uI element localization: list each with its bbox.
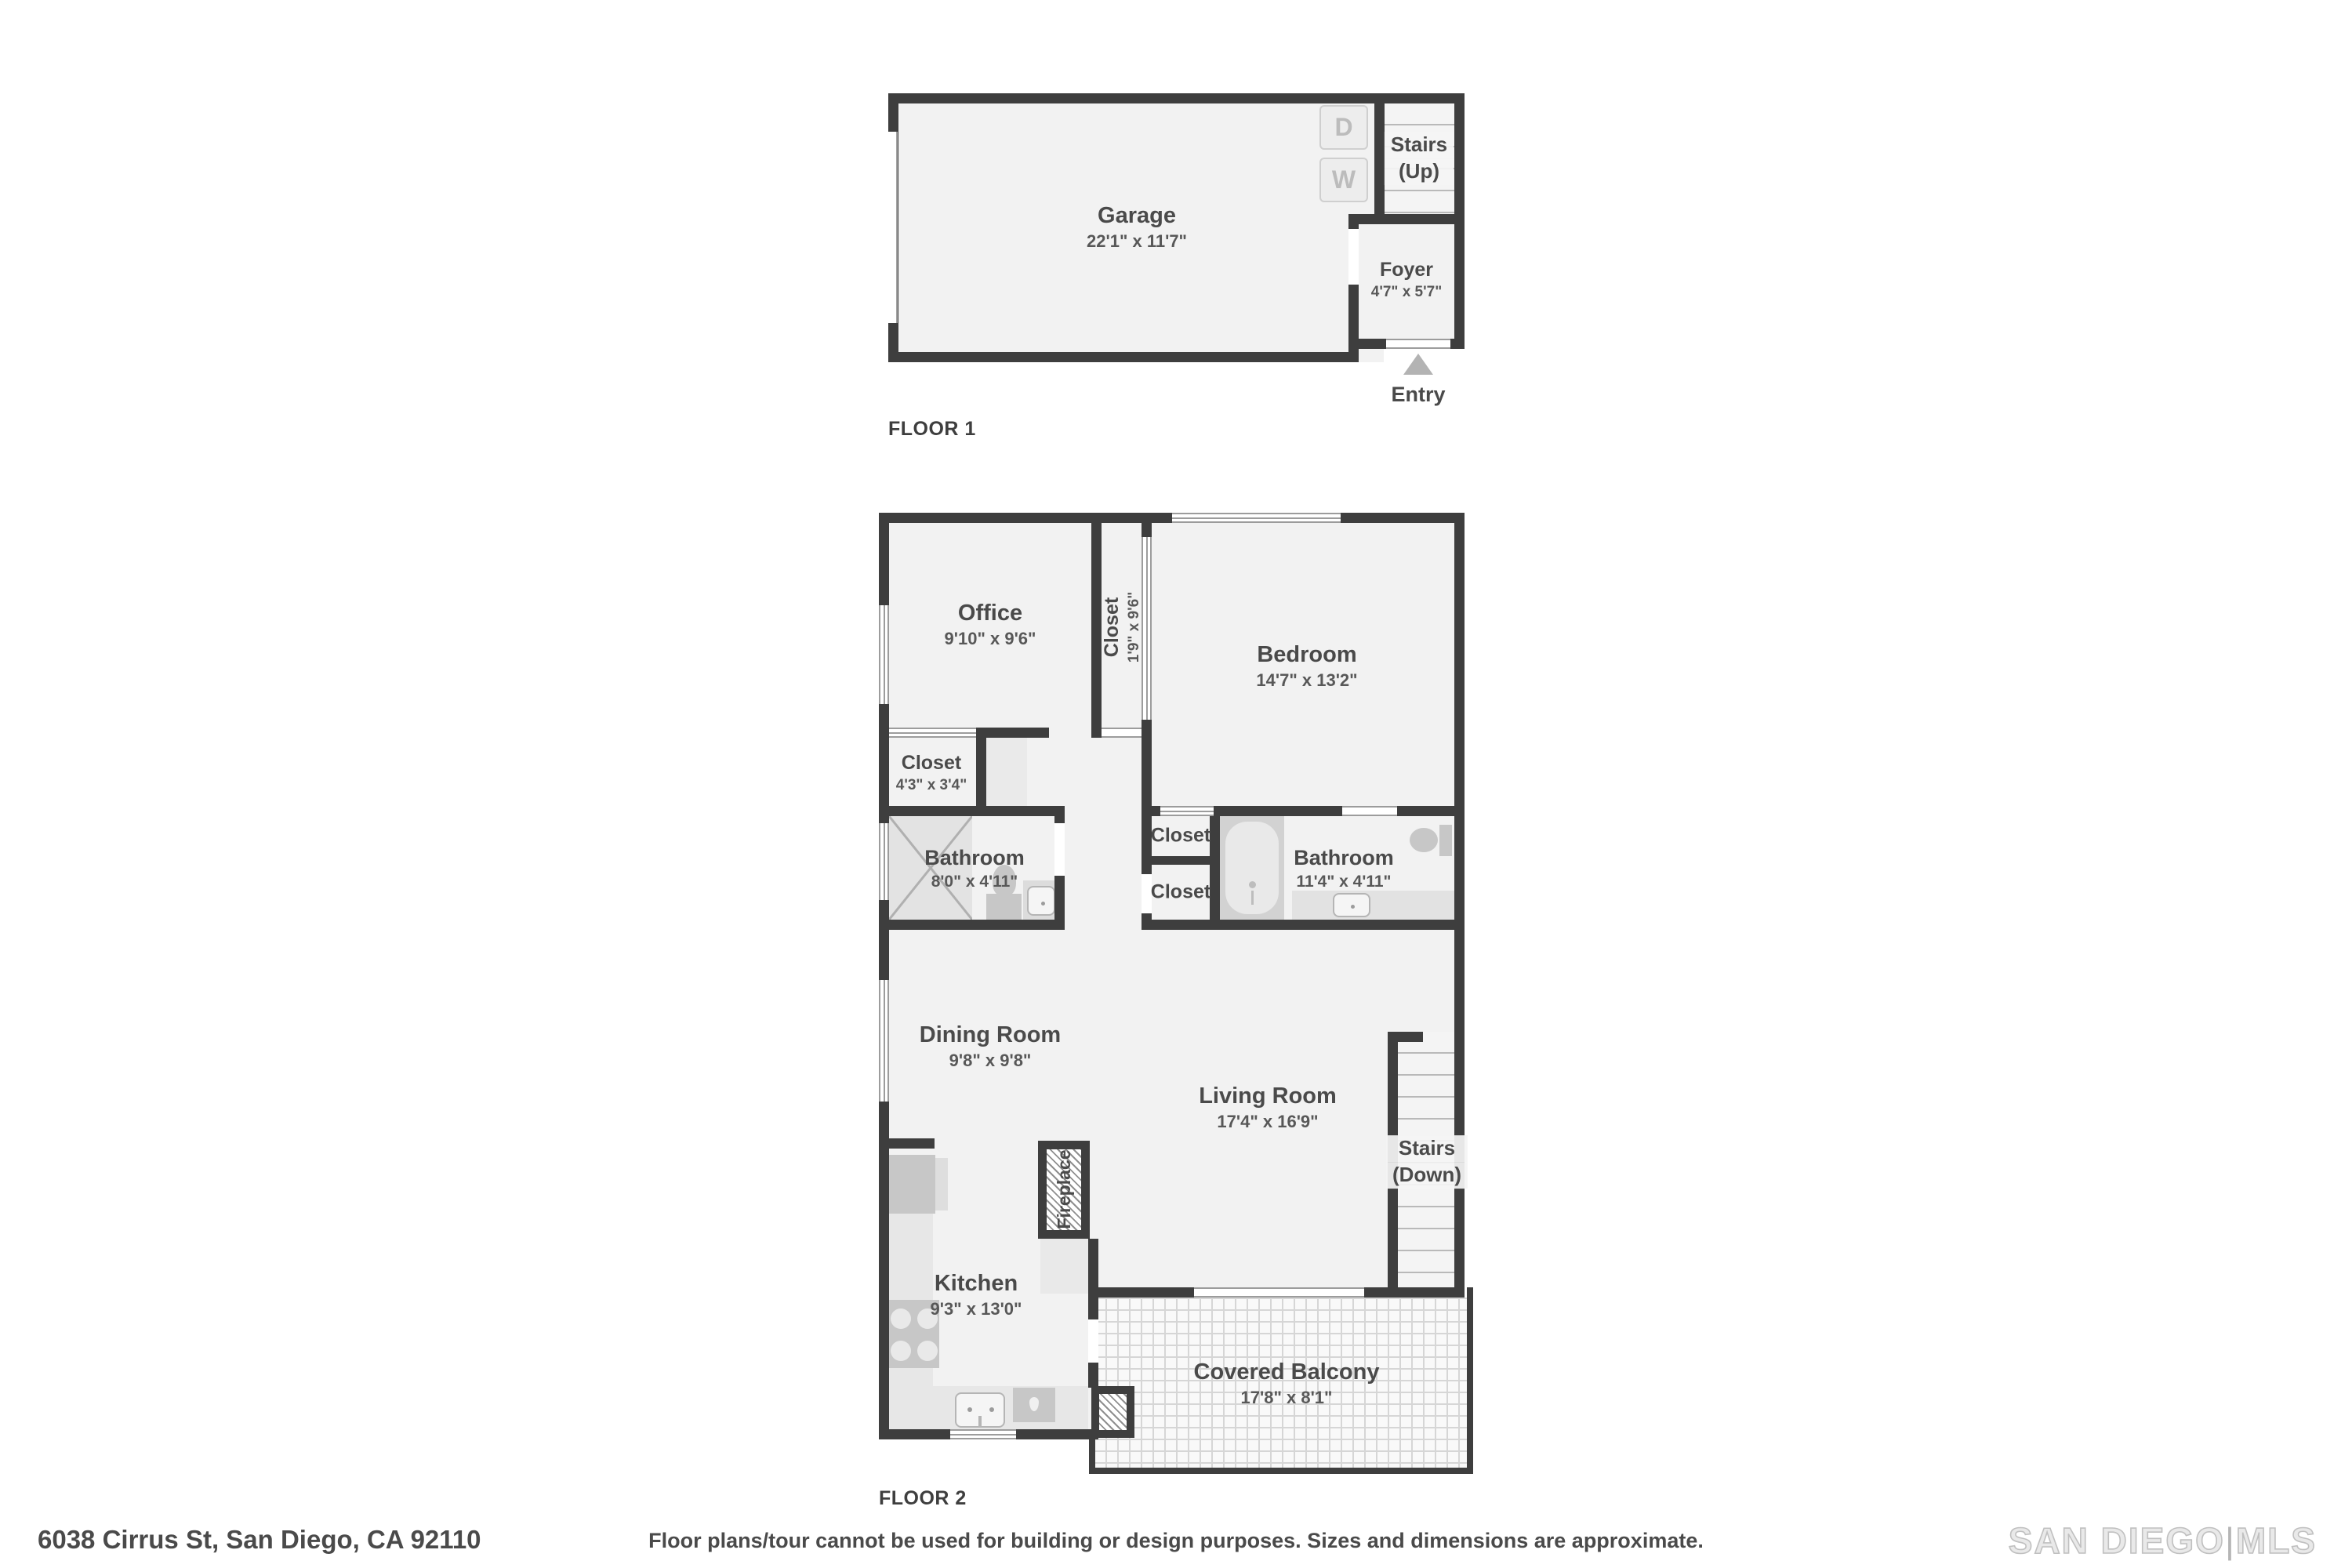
bathroom2-sink-icon bbox=[1333, 893, 1370, 917]
stairs-down-label: Stairs (Down) bbox=[1386, 1135, 1468, 1189]
burner-icon bbox=[917, 1341, 938, 1361]
kitchen-balcony-door-opening bbox=[1088, 1319, 1098, 1363]
wall bbox=[879, 920, 1065, 930]
wall bbox=[879, 806, 1065, 816]
wall bbox=[1142, 920, 1465, 930]
dishwasher-icon bbox=[1013, 1388, 1055, 1422]
balcony-wall-thin bbox=[1467, 1287, 1473, 1474]
floor2-tag: FLOOR 2 bbox=[879, 1487, 967, 1510]
wall bbox=[1091, 513, 1102, 738]
burner-icon bbox=[891, 1341, 911, 1361]
dining-window bbox=[879, 980, 889, 1102]
burner-icon bbox=[891, 1308, 911, 1329]
wall bbox=[976, 738, 986, 806]
stairs-down-nub bbox=[1388, 1032, 1423, 1042]
floor2-mid-area bbox=[879, 930, 1465, 1298]
wall bbox=[1142, 720, 1152, 816]
wall bbox=[1364, 1287, 1465, 1298]
wall bbox=[1088, 1239, 1098, 1319]
room-living-label: Living Room 17'4" x 16'9" bbox=[1199, 1083, 1337, 1132]
bathroom-sink-icon bbox=[1027, 886, 1055, 916]
wall bbox=[1142, 513, 1152, 537]
fireplace-label: Fireplace bbox=[1054, 1150, 1074, 1229]
wall bbox=[1098, 1287, 1194, 1298]
wall bbox=[1142, 856, 1220, 865]
logo-secondary: MLS bbox=[2236, 1520, 2317, 1561]
logo-divider: | bbox=[2225, 1520, 2236, 1561]
closet-upper-label: Closet bbox=[1151, 825, 1210, 848]
closet-tall-opening bbox=[1102, 728, 1142, 738]
room-dining-label: Dining Room 9'8" x 9'8" bbox=[920, 1022, 1061, 1071]
wall bbox=[1088, 1363, 1098, 1388]
bedroom-closet-slider bbox=[1160, 806, 1214, 816]
room-balcony-label: Covered Balcony 17'8" x 8'1" bbox=[1194, 1359, 1380, 1408]
closet-lower-label: Closet bbox=[1151, 881, 1210, 904]
sandiego-mls-logo: SAN DIEGO|MLS bbox=[2009, 1519, 2317, 1562]
room-closet-small-label: Closet 4'3" x 3'4" bbox=[896, 752, 967, 794]
closet-small-slider bbox=[889, 728, 976, 738]
toilet2-tank bbox=[1439, 825, 1452, 856]
office-window bbox=[879, 605, 889, 704]
fridge-handle bbox=[935, 1158, 948, 1210]
disclaimer-text: Floor plans/tour cannot be used for buil… bbox=[648, 1529, 1704, 1553]
bathroom-window bbox=[879, 823, 889, 900]
balcony-slider-door bbox=[1194, 1287, 1364, 1298]
wall bbox=[1210, 816, 1220, 930]
wall bbox=[976, 728, 1049, 738]
logo-primary: SAN DIEGO bbox=[2009, 1520, 2225, 1561]
floor2-plan: Fireplace Office 9'10" bbox=[0, 0, 2352, 1568]
tub-drain-line bbox=[1251, 891, 1254, 905]
bathroom2-door-opening bbox=[1342, 806, 1397, 816]
toilet-tank bbox=[986, 894, 1022, 920]
kitchen-window bbox=[950, 1429, 1016, 1439]
hearth bbox=[1040, 1239, 1094, 1294]
room-closet-tall-label: Closet 1'9" x 9'6" bbox=[1101, 592, 1143, 662]
room-bathroom-left-label: Bathroom 8'0" x 4'11" bbox=[924, 846, 1025, 891]
room-kitchen-label: Kitchen 9'3" x 13'0" bbox=[931, 1271, 1022, 1319]
balcony-column-hatch bbox=[1099, 1394, 1127, 1430]
kitchen-sink-icon bbox=[955, 1392, 1005, 1428]
balcony-wall-thin bbox=[1089, 1438, 1095, 1474]
floorplan-page: { "colors": { "wall": "#3e3e3e", "floor_… bbox=[0, 0, 2352, 1568]
bathroom-door-opening bbox=[1054, 823, 1065, 876]
tub-drain bbox=[1249, 881, 1256, 888]
toilet2-icon bbox=[1410, 828, 1438, 852]
room-bedroom-label: Bedroom 14'7" x 13'2" bbox=[1256, 642, 1357, 691]
hall-nook bbox=[986, 738, 1027, 806]
vanity2-counter bbox=[1292, 891, 1454, 920]
closet-slider-door bbox=[1142, 537, 1152, 720]
room-office-label: Office 9'10" x 9'6" bbox=[945, 601, 1036, 649]
property-address: 6038 Cirrus St, San Diego, CA 92110 bbox=[38, 1525, 481, 1555]
balcony-wall-thin bbox=[1089, 1468, 1473, 1474]
fridge-icon bbox=[884, 1155, 935, 1214]
bedroom-window bbox=[1172, 513, 1341, 523]
room-bathroom-right-label: Bathroom 11'4" x 4'11" bbox=[1294, 846, 1394, 891]
